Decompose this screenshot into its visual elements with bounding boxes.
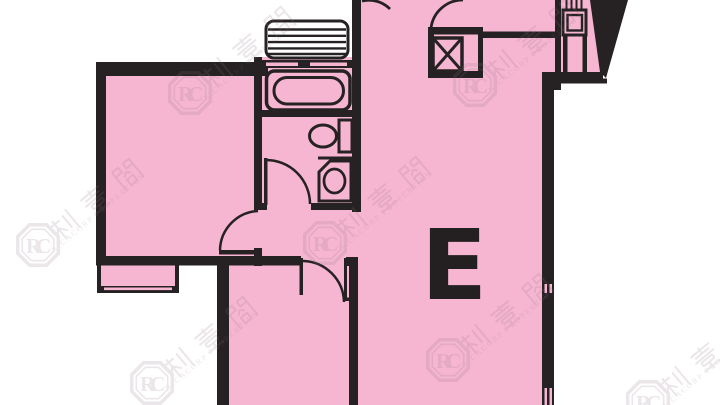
floor-plan: RC RICACORP PROPERTIES <box>0 0 720 405</box>
utility-top-wall <box>478 32 557 39</box>
duct-x-box <box>433 38 462 71</box>
kitchen-door-strike-wall <box>346 257 358 266</box>
shaft-top-wall <box>428 27 483 35</box>
bathtub <box>267 71 351 110</box>
bedroom-left-wall <box>96 62 106 265</box>
bathroom-shelf <box>318 157 352 160</box>
top-right-wall-shadow <box>559 79 607 84</box>
bedroom-bathroom-wall <box>254 57 262 210</box>
wash-basin <box>319 161 351 201</box>
bathroom-right-wall <box>352 0 361 212</box>
living-right-wall <box>542 84 554 405</box>
kitchen-living-wall <box>349 257 358 405</box>
bedroom-bottom-wall <box>96 256 301 266</box>
unit-label: E <box>421 209 487 322</box>
top-right-wall <box>555 72 603 79</box>
